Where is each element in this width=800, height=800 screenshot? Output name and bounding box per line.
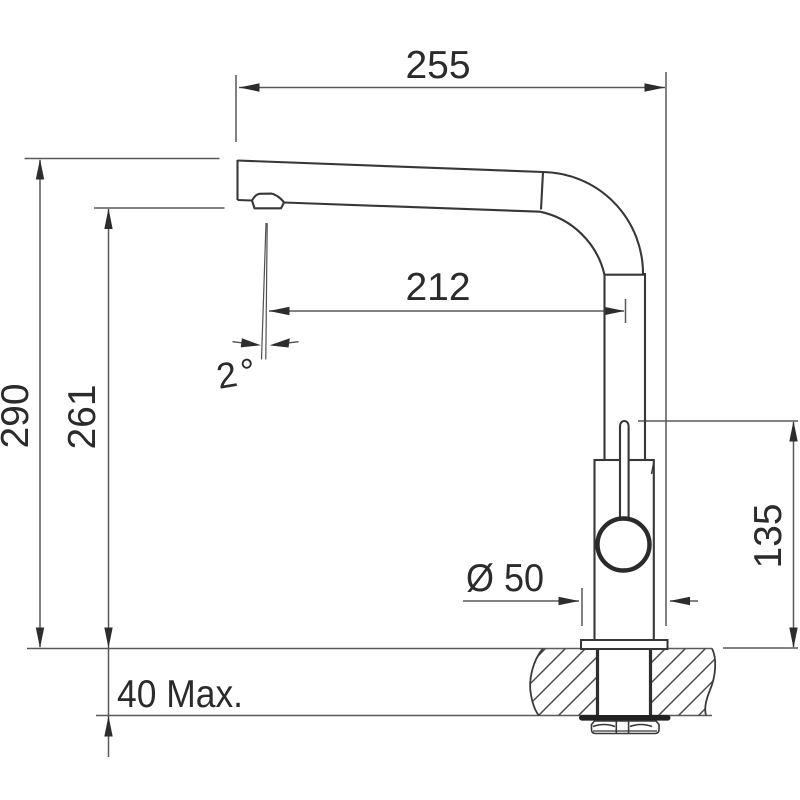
svg-text:261: 261 (61, 384, 104, 449)
svg-text:255: 255 (405, 44, 470, 87)
svg-text:40 Max.: 40 Max. (117, 673, 243, 716)
svg-text:212: 212 (405, 266, 470, 309)
svg-text:290: 290 (0, 383, 37, 448)
svg-text:Ø 50: Ø 50 (466, 557, 544, 600)
svg-text:135: 135 (747, 503, 790, 568)
